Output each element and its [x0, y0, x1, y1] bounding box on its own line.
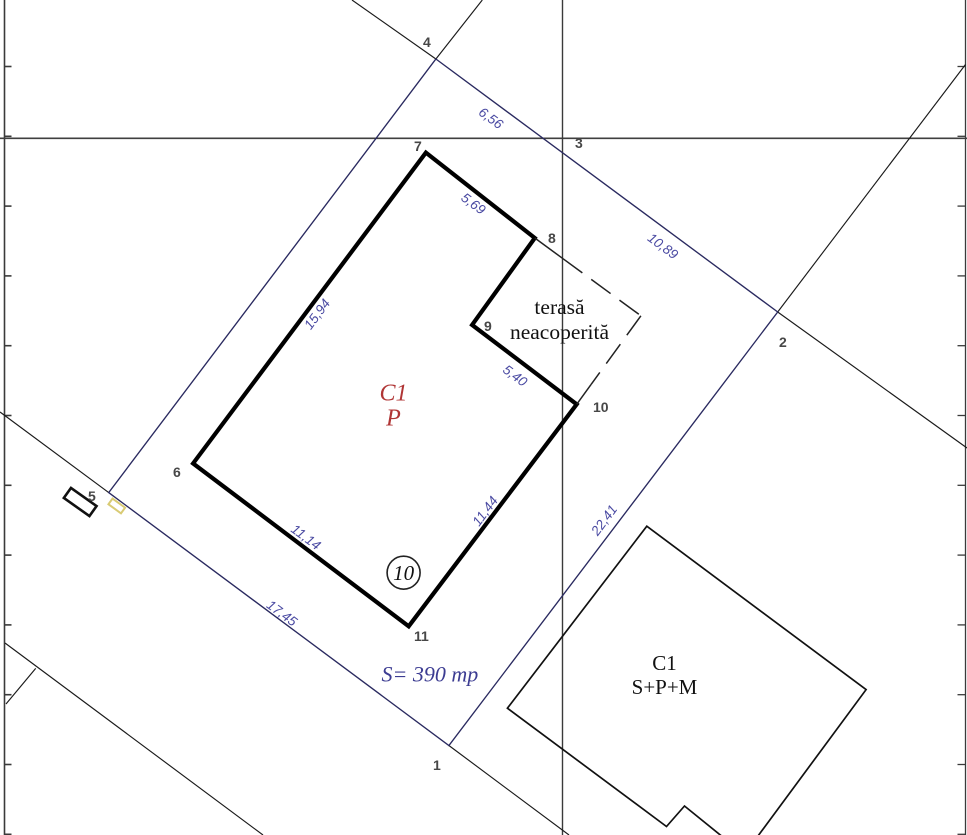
svg-text:10: 10 — [393, 561, 415, 585]
svg-text:3: 3 — [575, 135, 583, 151]
svg-text:S+P+M: S+P+M — [632, 675, 698, 699]
svg-text:22,41: 22,41 — [588, 502, 621, 539]
svg-text:1: 1 — [433, 757, 441, 773]
svg-text:terasă: terasă — [534, 295, 585, 319]
svg-text:8: 8 — [548, 230, 556, 246]
svg-text:C1: C1 — [379, 381, 407, 407]
svg-text:5: 5 — [88, 488, 96, 504]
svg-text:11: 11 — [414, 628, 429, 644]
svg-text:2: 2 — [779, 334, 787, 350]
svg-text:neacoperită: neacoperită — [510, 320, 610, 344]
svg-text:9: 9 — [484, 318, 492, 334]
svg-text:7: 7 — [414, 138, 422, 154]
svg-text:10: 10 — [593, 399, 609, 415]
svg-text:5,69: 5,69 — [458, 190, 488, 218]
svg-text:17,45: 17,45 — [264, 597, 300, 629]
svg-text:C1: C1 — [652, 651, 677, 675]
svg-text:6: 6 — [173, 464, 181, 480]
svg-text:10,89: 10,89 — [645, 230, 681, 262]
svg-text:S= 390 mp: S= 390 mp — [382, 662, 479, 687]
svg-text:P: P — [385, 406, 401, 432]
svg-text:4: 4 — [423, 34, 431, 50]
